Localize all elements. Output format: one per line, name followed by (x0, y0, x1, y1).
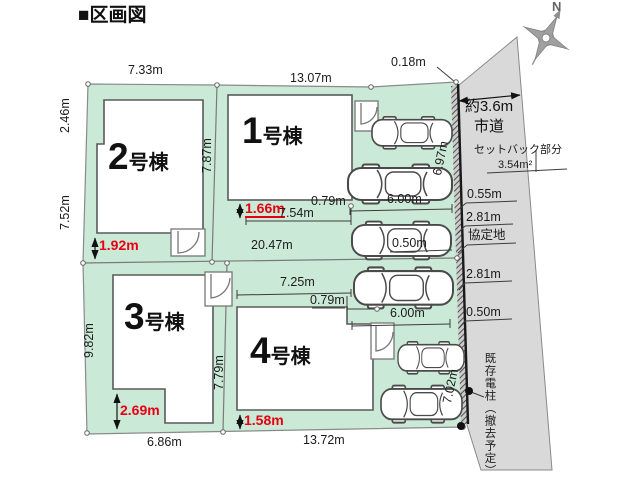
dim-agree-281b: 2.81m (466, 268, 501, 281)
building-2-label: 2号棟 (108, 138, 169, 175)
dim-b4-top: 7.25m (280, 276, 315, 289)
utility-pole-dot (465, 387, 473, 395)
dim-left-lower: 9.82m (83, 323, 96, 358)
road-width-label: 約3.6m (458, 99, 520, 114)
dim-parking-b: 6.00m (390, 307, 425, 320)
lot-layout-diagram: ■区画図 N 0.18m 7.33m 13.07m 2.46m 7.52m 7.… (0, 0, 640, 480)
compass-north-label: N (552, 0, 561, 13)
compass-icon (509, 0, 583, 77)
dim-b3-offset: 2.69m (120, 403, 160, 417)
dim-top-gap: 0.18m (391, 56, 426, 69)
setback-area-label: 3.54m² (498, 160, 532, 171)
car-icon (354, 267, 453, 308)
dim-b1-bottom: 7.54m (279, 207, 314, 220)
dim-setback-055: 0.55m (467, 188, 502, 201)
agreement-land-label: 協定地 (468, 229, 506, 242)
dim-b4-offset: 1.58m (244, 413, 284, 427)
building-4-label: 4号棟 (250, 332, 311, 369)
dim-b2-offset: 1.92m (99, 238, 139, 252)
dim-lot1-top: 13.07m (290, 72, 332, 85)
dim-lot3-bottom: 6.86m (147, 436, 182, 449)
dim-b1-step: 0.79m (311, 195, 346, 208)
setback-label: セットバック部分 (474, 145, 562, 156)
door-symbol-building3 (205, 272, 232, 306)
dim-left-upper: 2.46m (59, 98, 72, 133)
dim-left-mid: 7.52m (59, 195, 72, 230)
dim-divider-34: 7.79m (213, 355, 226, 390)
dim-agree-050b: 0.50m (466, 306, 501, 319)
utility-pole-dot (457, 422, 465, 430)
dim-agree-281a: 2.81m (466, 211, 501, 224)
existing-pole-label: 既存電柱（撤去予定） (483, 352, 495, 472)
building-3-label: 3号棟 (124, 298, 185, 335)
dim-divider-12: 7.87m (201, 138, 214, 173)
dim-lot4-bottom: 13.72m (303, 434, 345, 447)
dim-parking-a: 6.00m (387, 193, 422, 206)
dim-b4-step: 0.79m (310, 294, 345, 307)
door-symbol-building4 (371, 323, 394, 359)
dim-total-width: 20.47m (251, 239, 293, 252)
dim-car-gap: 0.50m (392, 237, 427, 250)
page-title: ■区画図 (78, 6, 146, 25)
building-1-label: 1号棟 (242, 112, 303, 149)
dim-lot2-top: 7.33m (128, 64, 163, 77)
door-symbol-building2 (171, 229, 205, 256)
road-type-label: 市道 (458, 119, 520, 134)
